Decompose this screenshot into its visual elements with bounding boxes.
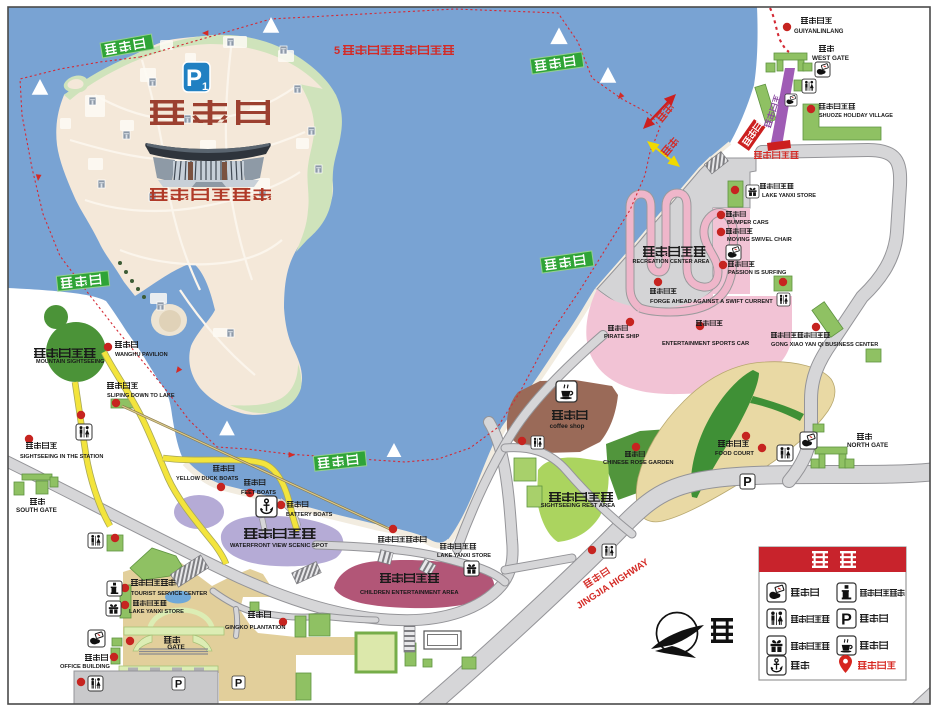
svg-text:OFFICE BUILDING: OFFICE BUILDING (60, 664, 110, 670)
svg-text:GONG XIAO YAN QI BUSINESS CENT: GONG XIAO YAN QI BUSINESS CENTER (771, 342, 878, 348)
svg-text:GINGKO PLANTATION: GINGKO PLANTATION (225, 625, 285, 631)
svg-text:FEET BOATS: FEET BOATS (241, 490, 276, 496)
svg-text:NORTH GATE: NORTH GATE (847, 442, 888, 449)
svg-text:GUIYANLINLANG: GUIYANLINLANG (794, 29, 844, 35)
svg-text:RECREATION CENTER AREA: RECREATION CENTER AREA (632, 259, 709, 265)
svg-text:BUMPER CARS: BUMPER CARS (727, 220, 769, 226)
svg-text:coffee shop: coffee shop (550, 423, 585, 430)
svg-text:LAKE YANXI STORE: LAKE YANXI STORE (762, 193, 816, 199)
svg-text:PASSION IS SURFING: PASSION IS SURFING (728, 270, 786, 276)
svg-text:WEST GATE: WEST GATE (812, 55, 849, 62)
svg-text:ENTERTAINMENT SPORTS CAR: ENTERTAINMENT SPORTS CAR (662, 341, 749, 347)
svg-text:SOUTH GATE: SOUTH GATE (16, 507, 57, 514)
svg-text:LAKE YANXI STORE: LAKE YANXI STORE (437, 553, 491, 559)
svg-text:FORGE AHEAD AGAINST A SWIFT CU: FORGE AHEAD AGAINST A SWIFT CURRENT (650, 299, 773, 305)
svg-text:MOVING SWIVEL CHAIR: MOVING SWIVEL CHAIR (727, 237, 792, 243)
svg-text:CHILDREN ENTERTAINMENT AREA: CHILDREN ENTERTAINMENT AREA (360, 590, 459, 596)
svg-text:BATTERY BOATS: BATTERY BOATS (286, 512, 333, 518)
svg-text:GATE: GATE (167, 644, 185, 651)
svg-text:SIGHTSEEING REST AREA: SIGHTSEEING REST AREA (541, 503, 616, 509)
svg-text:PIRATE SHIP: PIRATE SHIP (604, 334, 639, 340)
svg-text:WANGHU PAVILION: WANGHU PAVILION (115, 352, 168, 358)
svg-text:WATERFRONT VIEW SCENIC SPOT: WATERFRONT VIEW SCENIC SPOT (230, 543, 328, 549)
svg-text:1: 1 (202, 81, 208, 93)
svg-text:SIGHTSEEING IN THE STATION: SIGHTSEEING IN THE STATION (20, 454, 103, 460)
svg-text:SHUOZE HOLIDAY VILLAGE: SHUOZE HOLIDAY VILLAGE (819, 113, 893, 119)
svg-text:5: 5 (334, 45, 340, 57)
svg-text:YELLOW DUCK BOATS: YELLOW DUCK BOATS (176, 476, 239, 482)
svg-text:P: P (186, 65, 202, 92)
svg-text:LAKE YANXI STORE: LAKE YANXI STORE (129, 609, 184, 615)
svg-text:CHINESE ROSE GARDEN: CHINESE ROSE GARDEN (603, 460, 674, 466)
svg-text:TOURIST SERVICE CENTER: TOURIST SERVICE CENTER (131, 591, 207, 597)
svg-text:SLIPING DOWN TO LAKE: SLIPING DOWN TO LAKE (107, 393, 175, 399)
svg-text:FOOD COURT: FOOD COURT (715, 451, 754, 457)
svg-text:MOUNTAIN SIGHTSEEING: MOUNTAIN SIGHTSEEING (36, 359, 104, 365)
